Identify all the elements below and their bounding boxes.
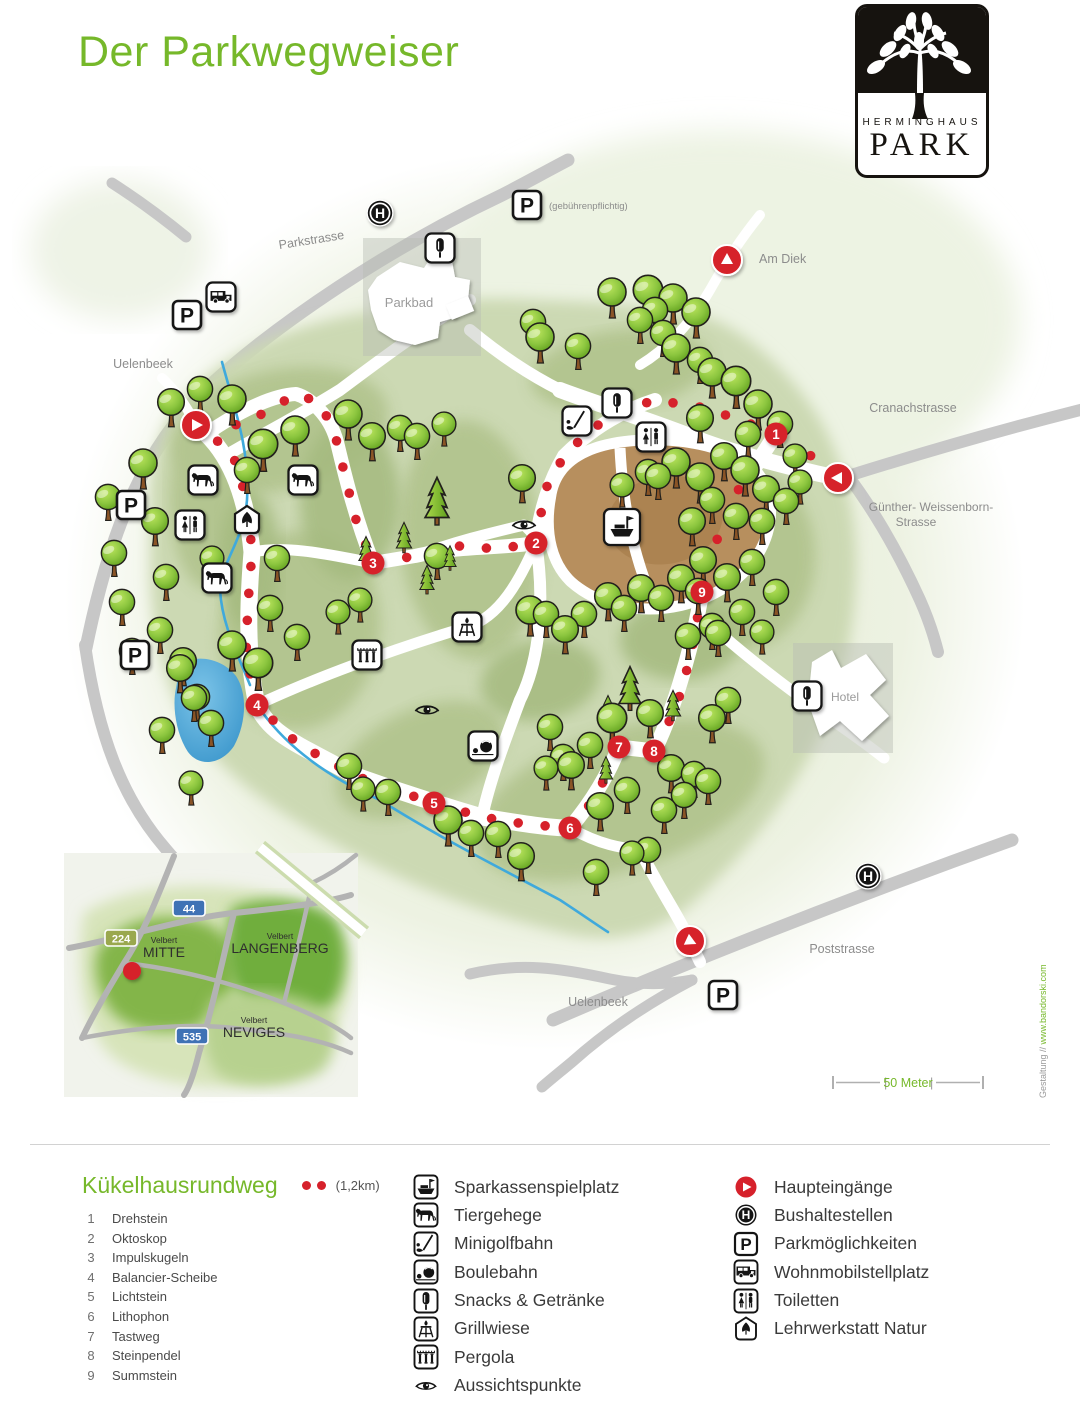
parkwegweiser-page: { "page": {"title": "Der Parkwegweiser"}… [0,0,1080,1407]
camper-sign-icon [207,283,236,312]
toilets-icon [637,423,666,452]
trail-station-item-4: 4Balancier-Scheibe [82,1270,382,1285]
area-label-parkbad: Parkbad [385,295,433,310]
trail-station-item-5: 5Lichtstein [82,1289,382,1304]
legend-item-parking: PParkmöglichkeiten [732,1233,1062,1255]
pergola-icon [412,1343,440,1371]
legend-item-snacks: Snacks & Getränke [412,1290,712,1312]
horse-icon [412,1201,440,1229]
park-location-marker [123,962,141,980]
street-label-cranachstrasse: Cranachstrasse [869,401,957,415]
ship-icon [412,1173,440,1201]
parking-sign: P [173,301,201,329]
camper-icon [732,1258,760,1286]
trail-station-item-1: 1Drehstein [82,1211,382,1226]
station-marker-7: 7 [608,736,631,759]
road-sign-44: 44 [173,900,205,916]
svg-text:H: H [375,205,385,221]
trail-station-item-9: 9Summstein [82,1368,382,1383]
grill-icon [453,613,482,642]
pergola-icon [353,641,382,670]
svg-text:P: P [124,495,138,518]
inset-label-velbert-mitte: MITTE [143,944,185,960]
street-label-guenther-weissenborn-2: Strasse [896,515,937,529]
legend-item-boule: Boulebahn [412,1261,712,1283]
area-label-hotel: Hotel [831,690,859,704]
legend-trail-distance: (1,2km) [336,1178,380,1193]
parking-icon: P [732,1230,760,1258]
trail-dots-icon [302,1181,326,1190]
svg-text:Gestaltung // www.bandorski.co: Gestaltung // www.bandorski.com [1038,964,1048,1098]
station-marker-1: 1 [765,423,788,446]
svg-text:50 Meter: 50 Meter [883,1076,932,1090]
svg-text:H: H [863,868,873,884]
svg-text:5: 5 [430,796,438,811]
eye-icon [412,1372,440,1400]
station-marker-3: 3 [362,552,385,575]
main-entrance-icon [823,463,853,493]
station-marker-9: 9 [691,581,714,604]
trail-station-item-6: 6Lithophon [82,1309,382,1324]
svg-text:9: 9 [698,585,706,600]
legend-item-golf: Minigolfbahn [412,1233,712,1255]
designer-credit: Gestaltung // www.bandorski.com [1038,964,1048,1098]
legend-item-entrance: Haupteingänge [732,1176,1062,1198]
legend-item-leaf: Lehrwerkstatt Natur [732,1318,1062,1340]
svg-text:P: P [740,1235,751,1254]
road-sign-224: 224 [105,930,137,946]
section-divider [30,1144,1050,1145]
grill-icon [412,1315,440,1343]
legend-trail-title: Kükelhausrundweg [82,1172,278,1199]
parking-sign: P [709,981,737,1009]
station-marker-2: 2 [525,532,548,555]
street-label-poststrasse: Poststrasse [809,942,874,956]
parking-sign: P [513,191,541,219]
parking-sign: P [117,491,145,519]
snacks-icon [793,682,822,711]
horse-icon [289,466,318,495]
inset-label-velbert-neviges: NEVIGES [223,1024,285,1040]
trail-station-item-3: 3Impulskugeln [82,1250,382,1265]
inset-label-velbert-langenberg: LANGENBERG [231,940,328,956]
bus-stop-icon: H [855,863,882,890]
legend-item-horse: Tiergehege [412,1204,712,1226]
station-marker-5: 5 [423,792,446,815]
legend-item-ship: Sparkassenspielplatz [412,1176,712,1198]
bus-stop-icon: H [367,200,394,227]
legend-services: HaupteingängeHBushaltestellenPParkmöglic… [732,1176,1062,1340]
toilets-icon [732,1287,760,1315]
logo-text-park: PARK [858,128,986,163]
street-label-am-diek: Am Diek [759,252,807,266]
trail-station-item-8: 8Steinpendel [82,1348,382,1363]
street-label-uelenbeek-north: Uelenbeek [113,357,174,371]
main-entrance-icon [181,410,211,440]
trail-station-item-2: 2Oktoskop [82,1231,382,1246]
snacks-icon [426,234,455,263]
svg-text:44: 44 [183,904,196,916]
station-marker-4: 4 [246,694,269,717]
parking-sign: P [121,641,149,669]
svg-text:P: P [128,645,142,668]
legend-item-busstop: HBushaltestellen [732,1204,1062,1226]
inset-overview-map: 44224535VelbertMITTEVelbertLANGENBERGVel… [64,847,364,1097]
legend-item-pergola: Pergola [412,1346,712,1368]
entrance-icon [732,1173,760,1201]
legend-item-toilets: Toiletten [732,1290,1062,1312]
boule-icon [469,732,498,761]
street-label-uelenbeek-south: Uelenbeek [568,995,629,1009]
legend-item-eye: Aussichtspunkte [412,1375,712,1397]
svg-text:P: P [520,195,534,218]
parking-fee-note: (gebührenpflichtig) [549,201,628,212]
station-marker-6: 6 [559,817,582,840]
toilets-icon [176,511,205,540]
leaf-icon [732,1315,760,1343]
svg-text:1: 1 [772,427,780,442]
legend-trail: Kükelhausrundweg (1,2km) 1Drehstein2Okto… [82,1172,382,1383]
busstop-icon: H [732,1201,760,1229]
svg-text:535: 535 [183,1032,201,1044]
golf-icon [563,407,592,436]
page-title: Der Parkwegweiser [78,28,459,77]
svg-text:P: P [716,985,730,1008]
scale-bar: ||50 Meter [833,1076,983,1090]
street-label-guenther-weissenborn-1: Günther- Weissenborn- [869,500,994,514]
golf-icon [412,1230,440,1258]
svg-text:3: 3 [369,556,377,571]
svg-text:224: 224 [112,934,131,946]
boule-icon [412,1258,440,1286]
svg-text:4: 4 [253,698,261,713]
svg-text:8: 8 [650,744,658,759]
svg-text:P: P [180,305,194,328]
svg-text:7: 7 [615,740,623,755]
station-marker-8: 8 [643,740,666,763]
road-sign-535: 535 [176,1028,208,1044]
ship-icon [604,509,640,545]
herminghaus-park-logo: HERMINGHAUS PARK [855,4,989,178]
main-entrance-icon [675,926,705,956]
svg-text:H: H [742,1208,751,1222]
snacks-icon [412,1287,440,1315]
horse-icon [189,466,218,495]
snacks-icon [603,389,632,418]
svg-text:2: 2 [532,536,540,551]
trail-station-item-7: 7Tastweg [82,1329,382,1344]
legend-item-grill: Grillwiese [412,1318,712,1340]
svg-text:6: 6 [566,821,574,836]
horse-icon [203,564,232,593]
legend-facilities: SparkassenspielplatzTiergehegeMinigolfba… [412,1176,712,1397]
main-entrance-icon [712,245,742,275]
legend-item-camper: Wohnmobilstellplatz [732,1261,1062,1283]
park-logo-tree-icon [858,7,986,93]
